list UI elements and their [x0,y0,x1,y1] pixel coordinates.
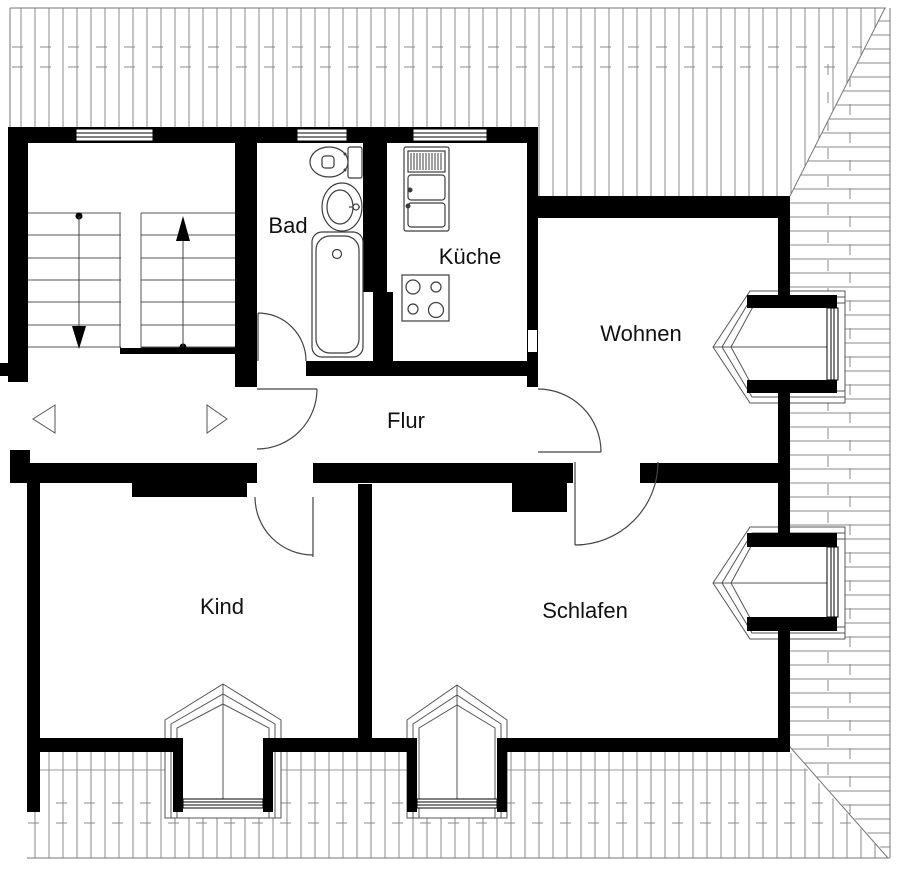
wall-bad-kueche-upper [363,132,387,292]
down-arrow-icon [72,213,86,350]
wall-flur-south-step [10,450,30,463]
wall-east-1 [778,196,790,297]
triangle-right-icon [207,405,227,433]
stair-wellhole [121,212,141,348]
dormer-cheek-schlafen-top [747,533,837,547]
up-arrow-icon [176,216,190,351]
wall-wohnen-north [538,196,790,218]
floorplan-page: Bad Küche Wohnen Flur Kind Schlafen [0,0,900,871]
corridor-direction-markers [33,405,227,433]
chimney-block [512,483,567,512]
wall-east-2 [778,392,790,533]
wall-east-3 [778,631,790,747]
door-swing-icon-bad [258,313,306,361]
wall-kind-north-chunk [132,483,247,497]
toilet-icon [310,147,362,178]
kitchen-sink-icon [404,147,449,231]
dormer-cheek-south-right [497,752,507,812]
dormer-cheek-schlafen-bottom [747,617,837,631]
dormer-window-icon-schlafen-south [407,685,507,818]
wall-kind-schlafen [358,484,372,750]
bad-fixtures [310,147,363,357]
door-swing-icon-corridor [257,389,317,449]
window-dormer-schlafen-south [417,799,497,808]
wall-west-kind [27,482,40,812]
stair-landing-edge [120,347,235,354]
staircase-icon [28,212,235,351]
window-dormer-wohnen [827,308,838,380]
wall-wohnen-schlafen [640,463,790,483]
triangle-left-icon [33,405,55,433]
room-label-kueche: Küche [439,244,501,269]
wall-west-ledge [0,363,10,376]
partition-niche [528,330,537,352]
floorplan-drawing: Bad Küche Wohnen Flur Kind Schlafen [0,0,900,871]
window-dormer-kind [183,799,263,808]
wall-south-2 [263,738,417,752]
dormer-cheek-wohnen-bottom [747,380,837,393]
dormer-cheek-kind-right [263,752,273,812]
kueche-fixtures [402,147,449,321]
room-label-flur: Flur [387,408,425,433]
window-dormer-schlafen-east [827,547,838,617]
window-stairwell [76,129,153,141]
washbasin-icon [322,183,362,231]
wall-west-upper [8,127,28,382]
window-kueche [413,129,487,141]
bathtub-icon [312,232,363,357]
wall-south-3 [497,738,790,752]
wall-flur-north [306,361,530,376]
window-bad [297,129,347,141]
wall-flur-south-mid [313,463,573,483]
wall-flur-south-west [10,463,257,483]
dormer-cheek-south-left [407,752,417,812]
dormer-cheek-kind-left [173,752,183,812]
door-swing-icon-wohnen [538,389,601,452]
dormer-cheek-wohnen-top [747,295,837,308]
room-label-kind: Kind [200,594,244,619]
door-swing-icon-kind [255,497,313,557]
room-label-bad: Bad [268,213,307,238]
room-label-wohnen: Wohnen [600,321,682,346]
stove-icon [402,275,449,321]
room-label-schlafen: Schlafen [542,598,628,623]
wall-stair-bad [235,143,257,387]
wall-south-1 [27,738,183,752]
